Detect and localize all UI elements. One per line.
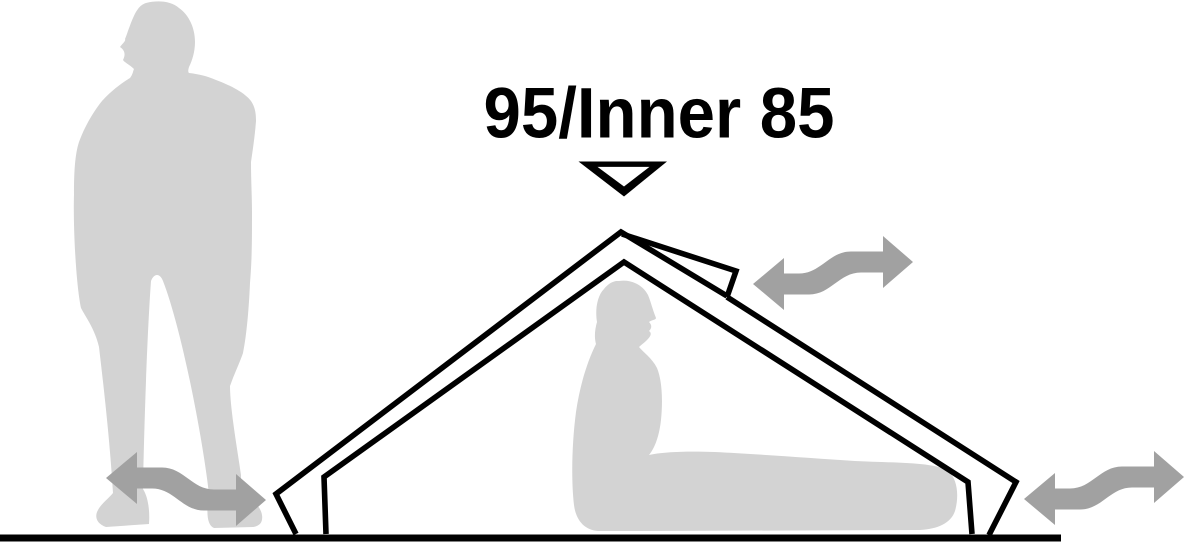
- svg-text:95/Inner 85: 95/Inner 85: [484, 75, 835, 154]
